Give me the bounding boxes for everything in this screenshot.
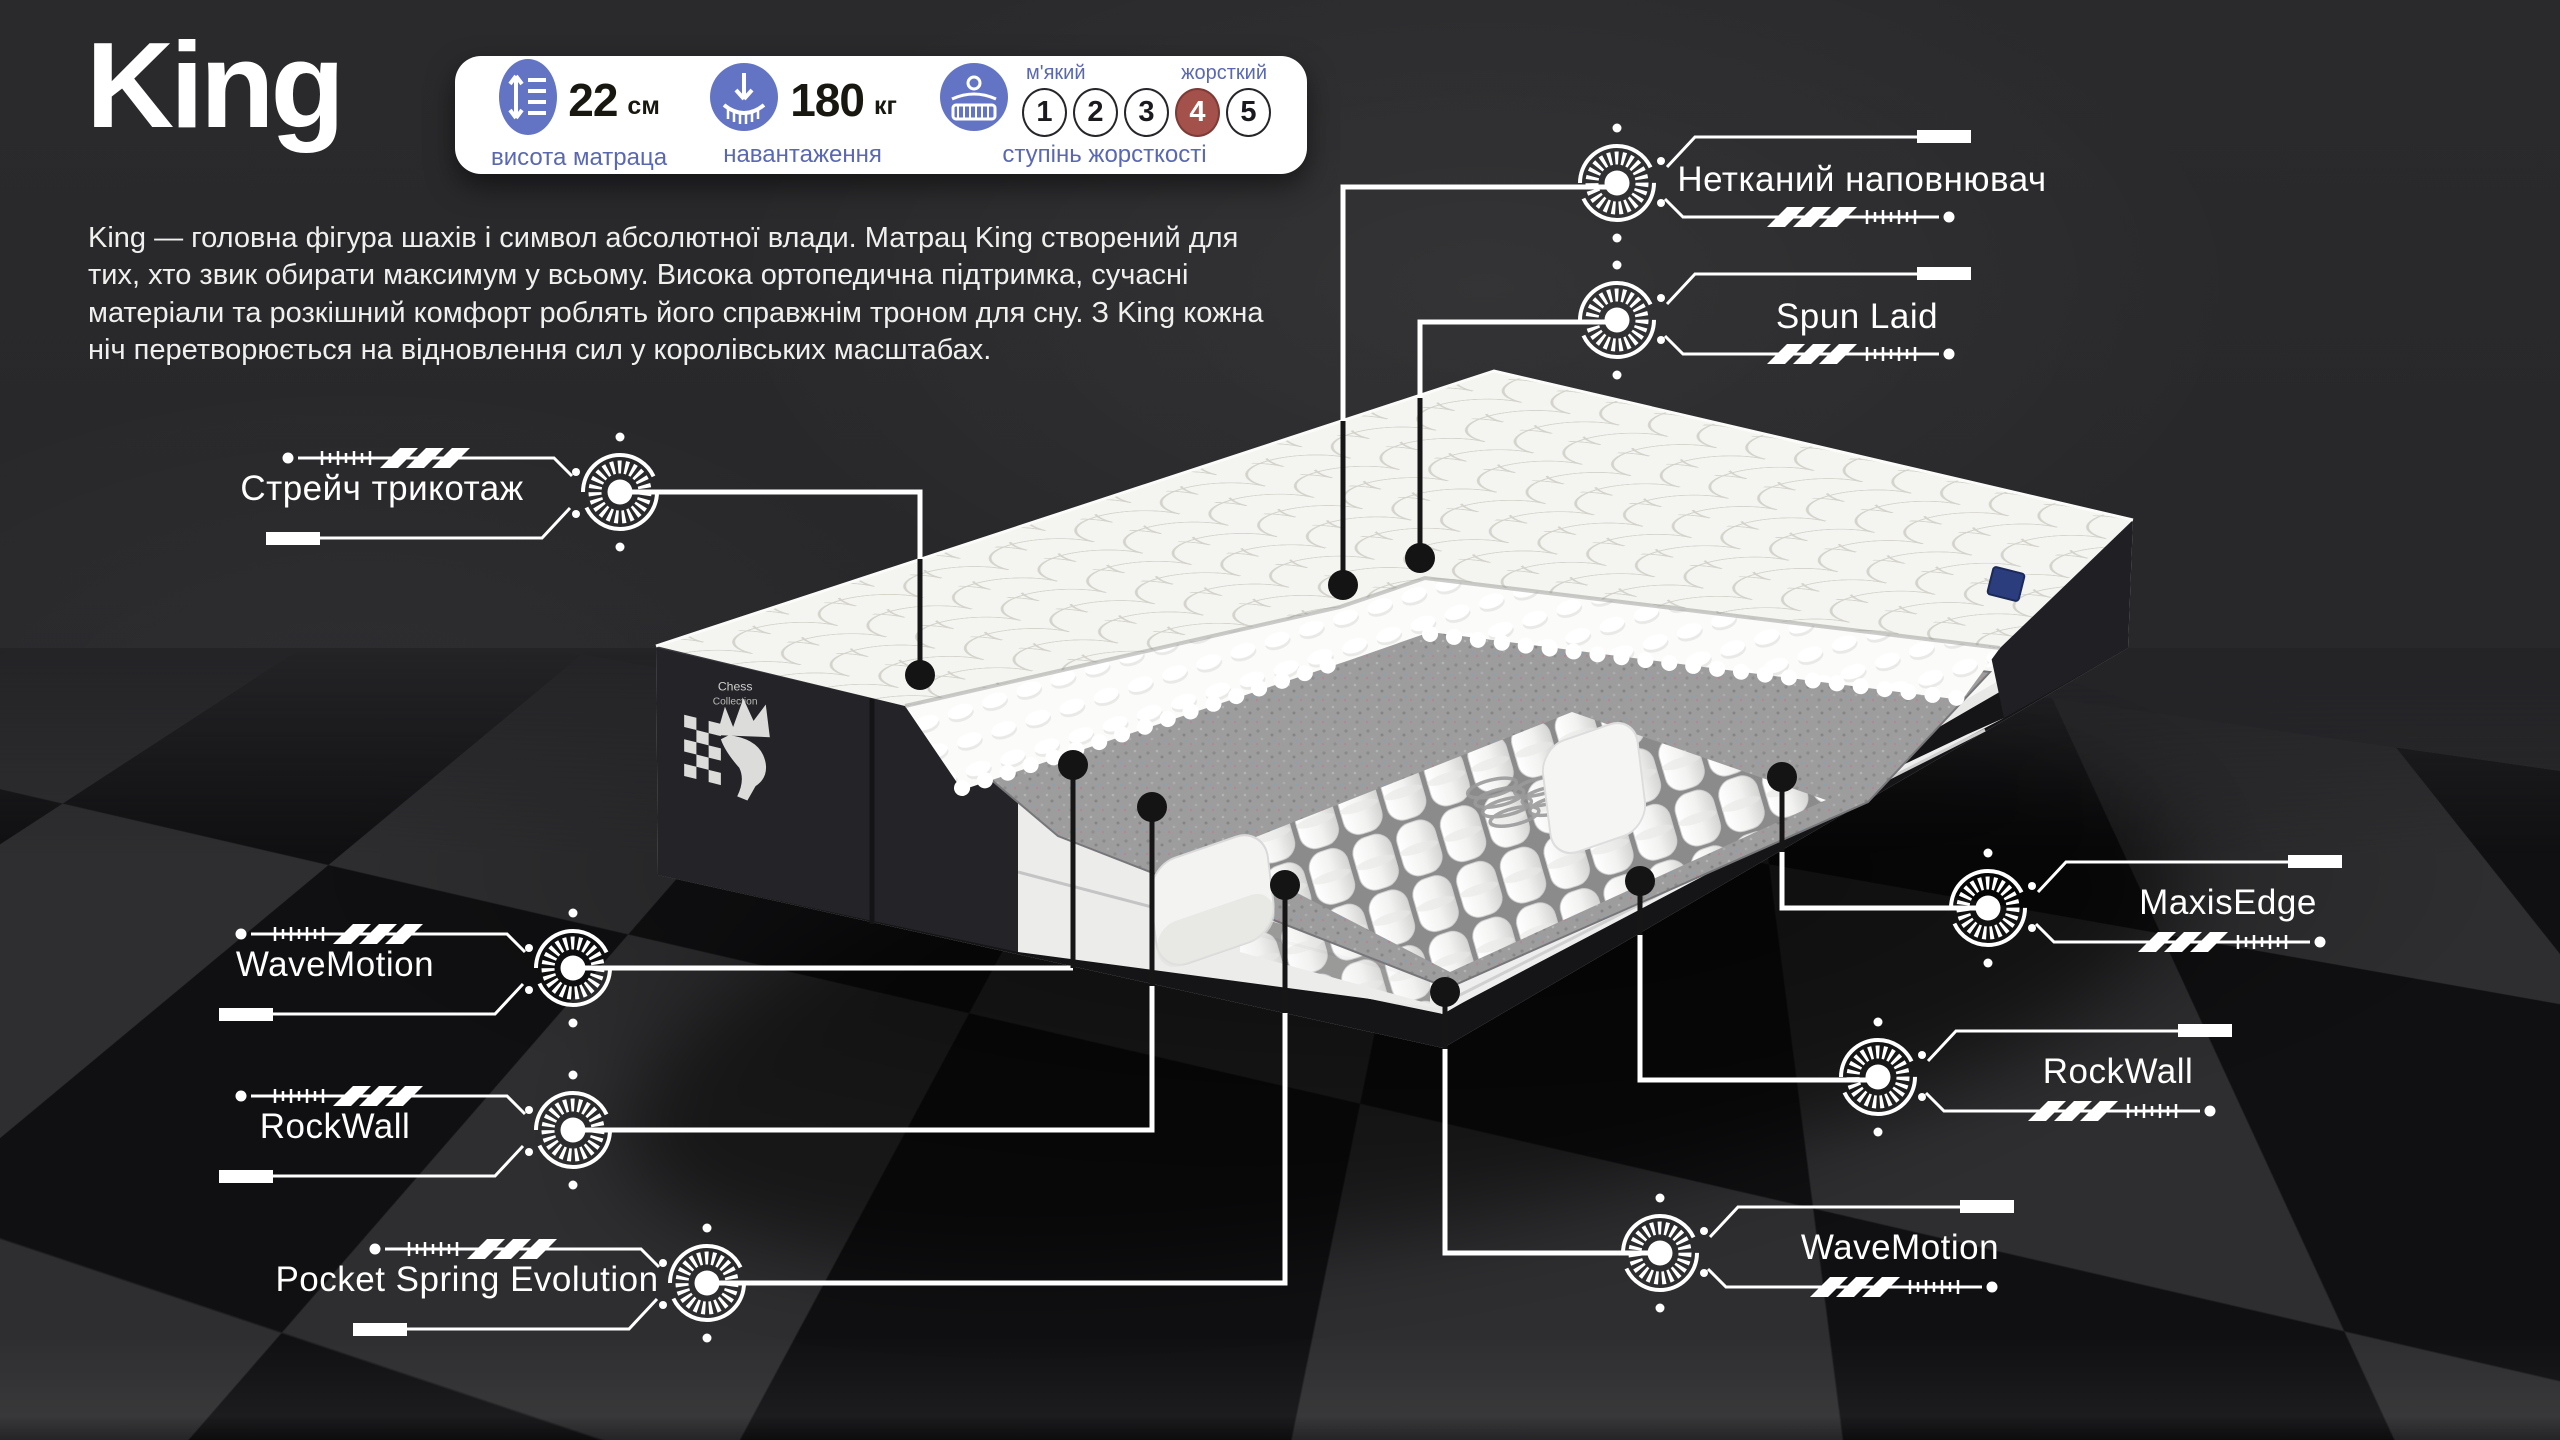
spec-height: 22 см висота матраца <box>491 58 667 172</box>
load-unit: кг <box>874 92 897 121</box>
callout-stretch-label: Стрейч трикотаж <box>240 469 523 509</box>
firmness-level-3: 3 <box>1124 88 1169 137</box>
height-unit: см <box>627 92 659 121</box>
load-label: навантаження <box>723 141 882 169</box>
brand-tag-line2: Collection <box>713 697 758 708</box>
callout-pocket-spring-label: Pocket Spring Evolution <box>275 1260 658 1300</box>
spec-firmness: м'який жорсткий 1 2 3 4 5 ступінь жорстк… <box>938 61 1271 169</box>
firmness-level-1: 1 <box>1022 88 1067 137</box>
firmness-icon <box>938 61 1010 138</box>
mattress-illustration: Chess Collection <box>0 0 2560 1440</box>
page-title: King <box>86 18 341 152</box>
firmness-level-4-selected: 4 <box>1175 88 1220 137</box>
firmness-hard-label: жорсткий <box>1181 62 1267 85</box>
callout-wavemotion-left-label: WaveMotion <box>236 945 434 985</box>
brand-tag-line1: Chess <box>718 679 753 693</box>
callout-maxisedge-label: MaxisEdge <box>2139 883 2317 923</box>
product-description: King — головна фігура шахів і символ абс… <box>88 220 1283 370</box>
height-value: 22 <box>568 73 617 127</box>
callout-spunlaid-label: Spun Laid <box>1776 297 1938 337</box>
firmness-level-5: 5 <box>1226 88 1271 137</box>
firmness-level-2: 2 <box>1073 88 1118 137</box>
mattress-height-icon <box>498 58 558 141</box>
infographic-page: Chess Collection <box>0 0 2560 1440</box>
callout-wavemotion-right-label: WaveMotion <box>1801 1228 1999 1268</box>
specs-card: 22 см висота матраца 180 кг нава <box>455 56 1307 174</box>
firmness-soft-label: м'який <box>1026 62 1086 85</box>
firmness-label: ступінь жорсткості <box>1002 141 1206 169</box>
callout-nonwoven-label: Нетканий наповнювач <box>1677 160 2046 200</box>
callout-rockwall-left-label: RockWall <box>260 1107 411 1147</box>
height-label: висота матраца <box>491 144 667 172</box>
firmness-scale: 1 2 3 4 5 <box>1022 88 1271 137</box>
spec-load: 180 кг навантаження <box>708 61 897 169</box>
max-load-icon <box>708 61 780 138</box>
callout-rockwall-right-label: RockWall <box>2043 1052 2194 1092</box>
load-value: 180 <box>790 73 864 127</box>
